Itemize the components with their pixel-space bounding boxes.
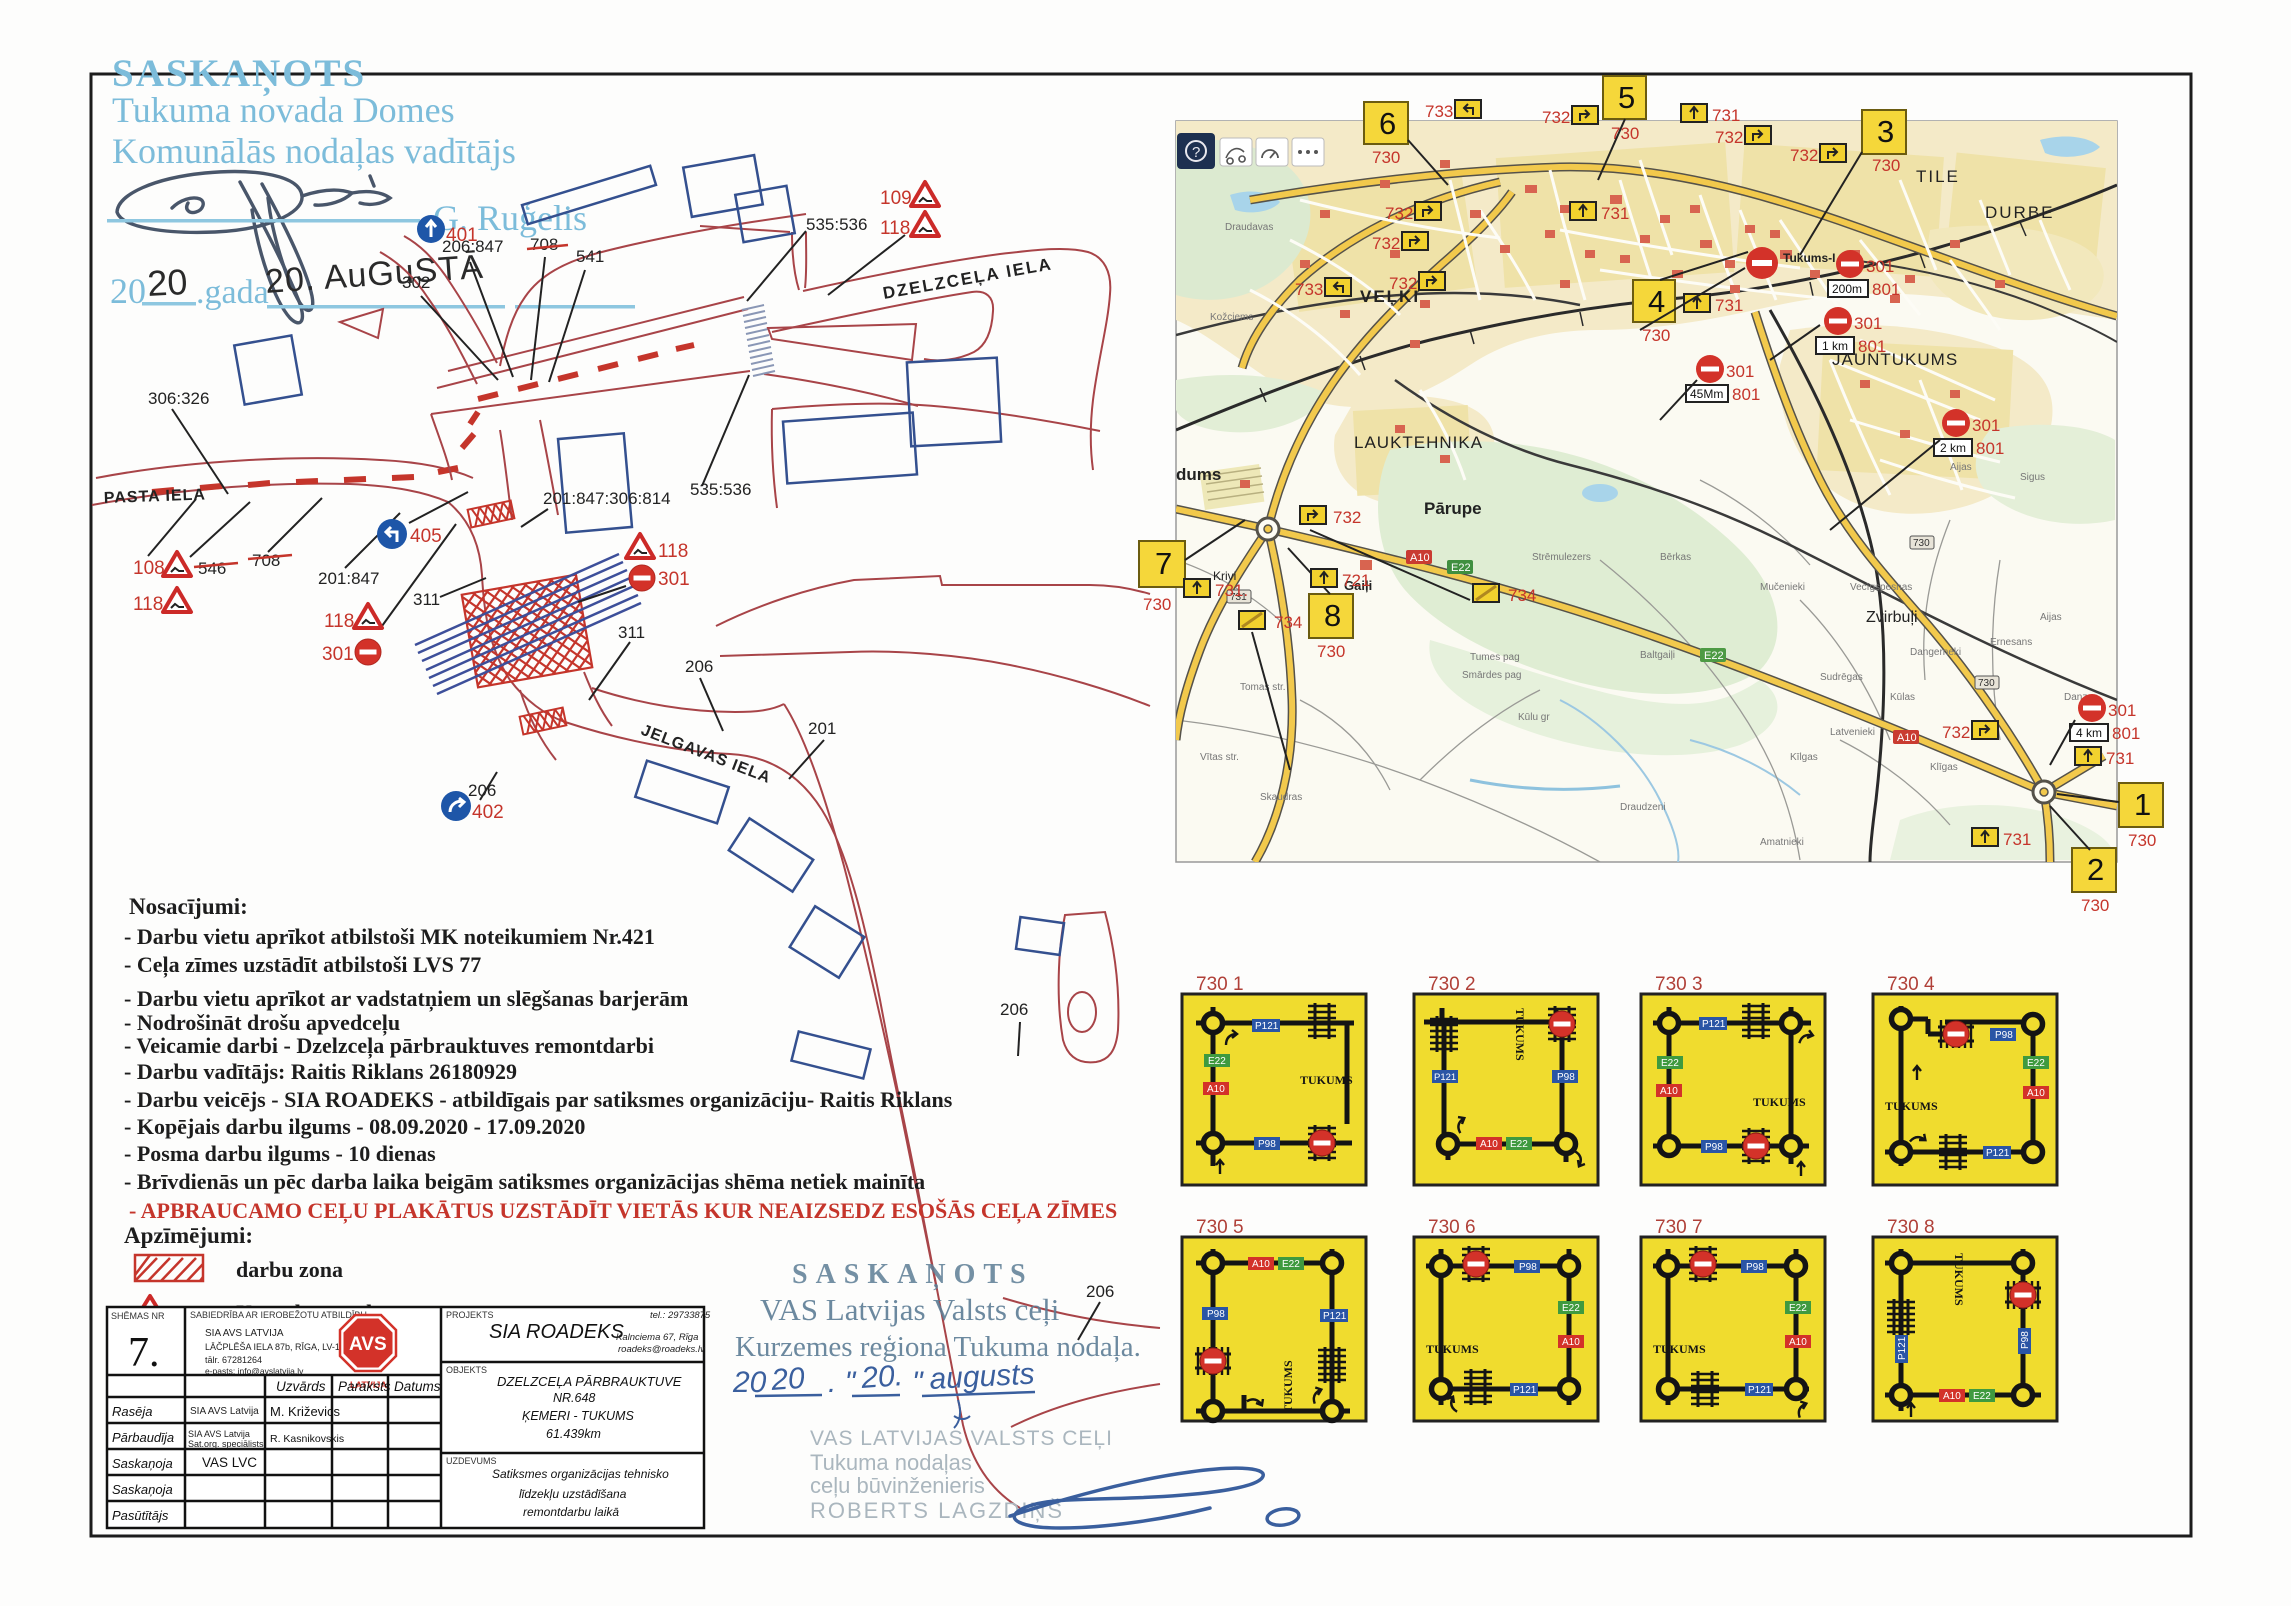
svg-text:Apzīmējumi:: Apzīmējumi: xyxy=(124,1223,253,1248)
svg-text:- Kopējais darbu ilgums - 08.0: - Kopējais darbu ilgums - 08.09.2020 - 1… xyxy=(124,1114,585,1139)
svg-text:TUKUMS: TUKUMS xyxy=(1653,1342,1706,1356)
svg-text:Kīlgas: Kīlgas xyxy=(1790,752,1818,763)
svg-text:Paraksts: Paraksts xyxy=(338,1379,391,1394)
svg-text:732: 732 xyxy=(1385,204,1413,223)
svg-text:TUKUMS: TUKUMS xyxy=(1281,1360,1295,1413)
svg-text:6: 6 xyxy=(1379,106,1396,141)
svg-text:augusts: augusts xyxy=(929,1358,1036,1396)
svg-text:E22: E22 xyxy=(1789,1303,1807,1314)
svg-text:301: 301 xyxy=(658,569,690,590)
svg-text:P98: P98 xyxy=(1557,1072,1575,1083)
svg-text:TUKUMS: TUKUMS xyxy=(1513,1008,1527,1061)
svg-text:P98: P98 xyxy=(2020,1331,2031,1349)
svg-text:E22: E22 xyxy=(1510,1139,1528,1150)
svg-text:Sudrēgas: Sudrēgas xyxy=(1820,672,1863,683)
svg-text:Kūlas: Kūlas xyxy=(1890,692,1915,703)
svg-text:VAS Latvijas Valsts ceļi: VAS Latvijas Valsts ceļi xyxy=(760,1292,1060,1327)
svg-text:UZDEVUMS: UZDEVUMS xyxy=(446,1456,497,1466)
svg-text:206:847: 206:847 xyxy=(442,237,503,256)
svg-text:61.439km: 61.439km xyxy=(546,1427,601,1441)
svg-text:Ernesans: Ernesans xyxy=(1990,637,2032,648)
svg-text:Tukums-I: Tukums-I xyxy=(1783,251,1835,265)
svg-text:732: 732 xyxy=(1790,146,1818,165)
svg-text:1: 1 xyxy=(2134,787,2151,822)
svg-text:dums: dums xyxy=(1176,465,1221,484)
svg-text:TUKUMS: TUKUMS xyxy=(1952,1253,1966,1306)
svg-text:206: 206 xyxy=(1086,1282,1114,1301)
svg-text:- APBRAUCAMO CEĻU PLAKĀTUS UZS: - APBRAUCAMO CEĻU PLAKĀTUS UZSTĀDĪT VIET… xyxy=(129,1198,1117,1224)
svg-text:. ": . " xyxy=(828,1366,857,1399)
svg-text:301: 301 xyxy=(1726,362,1754,381)
svg-text:734: 734 xyxy=(1274,613,1302,632)
svg-text:- Darbu vadītājs: Raitis Rikla: - Darbu vadītājs: Raitis Riklans 2618092… xyxy=(124,1059,517,1084)
svg-text:- Brīvdienās un pēc darba laik: - Brīvdienās un pēc darba laika beigām s… xyxy=(124,1169,925,1194)
svg-text:ĶEMERI - TUKUMS: ĶEMERI - TUKUMS xyxy=(522,1409,634,1423)
svg-text:730: 730 xyxy=(1978,678,1995,689)
svg-text:732: 732 xyxy=(1389,274,1417,293)
svg-text:E22: E22 xyxy=(1973,1391,1991,1402)
svg-text:E22: E22 xyxy=(1704,650,1724,662)
svg-text:730 5: 730 5 xyxy=(1196,1217,1244,1238)
svg-text:732: 732 xyxy=(1542,108,1570,127)
svg-text:731.: 731. xyxy=(1215,581,1248,600)
svg-text:Pārbaudīja: Pārbaudīja xyxy=(112,1430,174,1445)
svg-text:tel.: 29733875: tel.: 29733875 xyxy=(650,1310,711,1321)
svg-text:118: 118 xyxy=(880,218,910,239)
svg-text:201:847:306:814: 201:847:306:814 xyxy=(543,489,671,508)
svg-text:546: 546 xyxy=(198,559,226,578)
svg-text:A10: A10 xyxy=(1480,1139,1498,1150)
svg-text:P98: P98 xyxy=(1258,1139,1276,1150)
svg-text:NR.648: NR.648 xyxy=(553,1391,595,1405)
svg-text:VAS LVC: VAS LVC xyxy=(202,1455,257,1470)
svg-text:Aijas: Aijas xyxy=(2040,612,2062,623)
svg-text:306:326: 306:326 xyxy=(148,389,209,408)
svg-text:OBJEKTS: OBJEKTS xyxy=(446,1365,487,1375)
svg-text:?: ? xyxy=(1192,144,1200,161)
svg-text:Tumes pag: Tumes pag xyxy=(1470,652,1520,663)
svg-text:Klīgas: Klīgas xyxy=(1930,762,1958,773)
svg-text:P121: P121 xyxy=(1323,1311,1347,1322)
svg-text:E22: E22 xyxy=(1282,1259,1300,1270)
svg-text:PASTA IELA: PASTA IELA xyxy=(104,486,207,507)
svg-text:20: 20 xyxy=(110,271,146,311)
svg-text:302: 302 xyxy=(402,273,430,292)
svg-text:P121: P121 xyxy=(1434,1072,1456,1083)
svg-text:301: 301 xyxy=(322,644,354,665)
svg-text:2 km: 2 km xyxy=(1940,441,1966,455)
svg-text:Tukuma nodaļas: Tukuma nodaļas xyxy=(810,1450,972,1475)
svg-text:.gada: .gada xyxy=(196,274,269,311)
svg-text:730 7: 730 7 xyxy=(1655,1217,1703,1238)
svg-text:311: 311 xyxy=(413,590,440,609)
svg-text:311: 311 xyxy=(618,623,645,642)
svg-text:P121: P121 xyxy=(1702,1019,1726,1030)
svg-text:20: 20 xyxy=(732,1366,767,1399)
svg-text:R. Kasnikovskis: R. Kasnikovskis xyxy=(270,1433,344,1445)
svg-text:Uzvārds: Uzvārds xyxy=(276,1379,326,1394)
svg-text:201: 201 xyxy=(808,719,836,738)
svg-text:A10: A10 xyxy=(1562,1337,1580,1348)
svg-text:SIA ROADEKS: SIA ROADEKS xyxy=(489,1321,625,1343)
svg-text:Strēmulezers: Strēmulezers xyxy=(1532,552,1591,563)
svg-text:E22: E22 xyxy=(1562,1303,1580,1314)
svg-text:SHĒMAS NR: SHĒMAS NR xyxy=(111,1311,165,1321)
svg-text:Tukuma novada Domes: Tukuma novada Domes xyxy=(112,90,455,130)
svg-text:P121: P121 xyxy=(1513,1385,1537,1396)
svg-text:801: 801 xyxy=(1858,337,1886,356)
svg-text:Kalnciema 67, Rīga: Kalnciema 67, Rīga xyxy=(616,1332,698,1343)
svg-text:730 2: 730 2 xyxy=(1428,974,1476,995)
svg-text:Aijas: Aijas xyxy=(1950,462,1972,473)
svg-text:206: 206 xyxy=(468,781,496,800)
svg-text:TUKUMS: TUKUMS xyxy=(1426,1342,1479,1356)
svg-text:801: 801 xyxy=(1732,385,1760,404)
svg-text:118: 118 xyxy=(658,541,688,562)
svg-text:731: 731 xyxy=(1712,106,1740,125)
svg-text:734: 734 xyxy=(1508,586,1536,605)
svg-text:206: 206 xyxy=(685,657,713,676)
svg-text:732: 732 xyxy=(1333,508,1361,527)
svg-text:301: 301 xyxy=(1866,257,1894,276)
svg-text:A10: A10 xyxy=(1252,1259,1270,1270)
svg-text:3: 3 xyxy=(1877,114,1894,149)
svg-text:721: 721 xyxy=(1342,571,1370,590)
svg-text:SIA AVS Latvija: SIA AVS Latvija xyxy=(190,1406,259,1417)
svg-text:- Ceļa zīmes uzstādīt atbilsto: - Ceļa zīmes uzstādīt atbilstoši LVS 77 xyxy=(124,952,481,978)
svg-text:Draudzeni: Draudzeni xyxy=(1620,802,1666,813)
svg-text:730: 730 xyxy=(1913,538,1930,549)
svg-text:DZELZCEĻA PĀRBRAUKTUVE: DZELZCEĻA PĀRBRAUKTUVE xyxy=(497,1374,682,1389)
svg-text:730 3: 730 3 xyxy=(1655,974,1703,995)
svg-text:Kožciems: Kožciems xyxy=(1210,312,1253,323)
svg-text:730: 730 xyxy=(1642,326,1670,345)
svg-text:A10: A10 xyxy=(1789,1337,1807,1348)
svg-text:P98: P98 xyxy=(1995,1030,2013,1041)
svg-text:402: 402 xyxy=(472,802,504,823)
svg-text:801: 801 xyxy=(1872,280,1900,299)
svg-text:733: 733 xyxy=(1295,280,1323,299)
svg-text:8: 8 xyxy=(1324,598,1341,633)
svg-text:TUKUMS: TUKUMS xyxy=(1753,1095,1806,1109)
svg-text:E22: E22 xyxy=(2027,1058,2045,1069)
svg-text:PROJEKTS: PROJEKTS xyxy=(446,1310,494,1320)
svg-text:P121: P121 xyxy=(1897,1336,1908,1360)
svg-text:LĀČPLĒŠA IELA 87b, RĪGA, LV-10: LĀČPLĒŠA IELA 87b, RĪGA, LV-1011 xyxy=(205,1342,354,1352)
svg-text:731: 731 xyxy=(2106,749,2134,768)
svg-text:E22: E22 xyxy=(1451,562,1471,574)
svg-text:708: 708 xyxy=(252,551,280,570)
svg-text:20: 20 xyxy=(769,1362,806,1397)
svg-text:708: 708 xyxy=(530,235,558,254)
svg-text:5: 5 xyxy=(1618,80,1635,115)
svg-text:109: 109 xyxy=(880,188,912,209)
svg-text:Sat.org. speciālists: Sat.org. speciālists xyxy=(188,1439,264,1449)
svg-text:Saskaņoja: Saskaņoja xyxy=(112,1482,173,1497)
svg-text:TUKUMS: TUKUMS xyxy=(1300,1073,1353,1087)
svg-text:4 km: 4 km xyxy=(2076,726,2102,740)
svg-text:730 4: 730 4 xyxy=(1887,974,1935,995)
svg-text:Vecīgspesnas: Vecīgspesnas xyxy=(1850,582,1912,593)
svg-text:Draudavas: Draudavas xyxy=(1225,222,1273,233)
svg-text:A10: A10 xyxy=(2027,1088,2045,1099)
svg-text:SIA AVS LATVIJA: SIA AVS LATVIJA xyxy=(205,1328,284,1339)
svg-text:DURBE: DURBE xyxy=(1985,203,2055,222)
svg-text:731: 731 xyxy=(2003,830,2031,849)
svg-text:Smārdes pag: Smārdes pag xyxy=(1462,670,1521,681)
svg-text:108: 108 xyxy=(133,558,165,579)
svg-text:731: 731 xyxy=(1601,204,1629,223)
svg-text:A10: A10 xyxy=(1410,552,1430,564)
svg-text:Pārupe: Pārupe xyxy=(1424,499,1482,518)
svg-text:Skaudras: Skaudras xyxy=(1260,792,1302,803)
svg-text:301: 301 xyxy=(1972,416,2000,435)
svg-text:e-pasts: info@avslatvija.lv: e-pasts: info@avslatvija.lv xyxy=(205,1366,304,1376)
svg-text:Saskaņoja: Saskaņoja xyxy=(112,1456,173,1471)
svg-text:20: 20 xyxy=(146,261,188,304)
svg-text:731: 731 xyxy=(1715,296,1743,315)
svg-text:P98: P98 xyxy=(1705,1142,1723,1153)
svg-text:730: 730 xyxy=(1317,642,1345,661)
svg-text:- Darbu vietu aprīkot atbilsto: - Darbu vietu aprīkot atbilstoši MK note… xyxy=(124,924,655,949)
svg-text:TILE: TILE xyxy=(1916,167,1960,186)
svg-text:remontdarbu laikā: remontdarbu laikā xyxy=(523,1505,619,1519)
svg-text:118: 118 xyxy=(133,594,163,615)
svg-text:Satiksmes organizācijas tehnis: Satiksmes organizācijas tehnisko xyxy=(492,1467,669,1481)
svg-text:7.: 7. xyxy=(128,1330,160,1376)
svg-text:732: 732 xyxy=(1715,128,1743,147)
svg-text:801: 801 xyxy=(2112,724,2140,743)
svg-text:4: 4 xyxy=(1648,284,1665,319)
svg-text:7: 7 xyxy=(1155,546,1172,581)
svg-text:730: 730 xyxy=(1143,595,1171,614)
svg-text:732: 732 xyxy=(1942,723,1970,742)
svg-text:P98: P98 xyxy=(1207,1309,1225,1320)
svg-text:535:536: 535:536 xyxy=(806,215,867,234)
svg-text:Kūlu gr: Kūlu gr xyxy=(1518,712,1550,723)
svg-text:730 1: 730 1 xyxy=(1196,974,1244,995)
svg-text:Datums: Datums xyxy=(394,1379,441,1394)
svg-text:VAS LATVIJAS VALSTS CEĻI: VAS LATVIJAS VALSTS CEĻI xyxy=(810,1427,1113,1450)
svg-text:Vītas str.: Vītas str. xyxy=(1200,752,1239,763)
svg-text:SABIEDRĪBA AR IEROBEŽOTU ATBIL: SABIEDRĪBA AR IEROBEŽOTU ATBILDĪBU xyxy=(190,1310,367,1320)
svg-text:1 km: 1 km xyxy=(1822,339,1848,353)
svg-text:Kurzemes reģiona Tukuma nodaļa: Kurzemes reģiona Tukuma nodaļa. xyxy=(735,1331,1141,1363)
svg-text:Bērkas: Bērkas xyxy=(1660,552,1691,563)
svg-text:darbu zona: darbu zona xyxy=(236,1257,343,1282)
svg-text:Tomas str.: Tomas str. xyxy=(1240,682,1286,693)
svg-text:Pasūtītājs: Pasūtītājs xyxy=(112,1508,169,1523)
svg-text:": " xyxy=(912,1366,924,1399)
svg-text:Dangerneki: Dangerneki xyxy=(1910,647,1961,658)
svg-text:732: 732 xyxy=(1372,234,1400,253)
svg-text:Mučenieki: Mučenieki xyxy=(1760,582,1805,593)
svg-text:Latvenieki: Latvenieki xyxy=(1830,727,1875,738)
svg-text:801: 801 xyxy=(1976,439,2004,458)
svg-text:20.: 20. xyxy=(859,1359,904,1395)
svg-text:TUKUMS: TUKUMS xyxy=(1885,1099,1938,1113)
svg-text:Sigus: Sigus xyxy=(2020,472,2045,483)
svg-text:730: 730 xyxy=(1372,148,1400,167)
svg-text:E22: E22 xyxy=(1661,1058,1679,1069)
svg-text:Baltgaiļi: Baltgaiļi xyxy=(1640,650,1675,661)
svg-text:E22: E22 xyxy=(1208,1056,1226,1067)
svg-text:730: 730 xyxy=(2128,831,2156,850)
svg-text:līdzekļu uzstādīšana: līdzekļu uzstādīšana xyxy=(519,1487,627,1501)
svg-text:730 8: 730 8 xyxy=(1887,1217,1935,1238)
svg-text:201:847: 201:847 xyxy=(318,569,379,588)
svg-text:ceļu būvinženieris: ceļu būvinženieris xyxy=(810,1473,985,1498)
svg-text:tālr. 67281264: tālr. 67281264 xyxy=(205,1355,262,1365)
svg-text:Rasēja: Rasēja xyxy=(112,1404,152,1419)
svg-text:2: 2 xyxy=(2087,852,2104,887)
svg-text:Amatnieki: Amatnieki xyxy=(1760,837,1804,848)
svg-text:- Posma darbu ilgums - 10 dien: - Posma darbu ilgums - 10 dienas xyxy=(124,1141,436,1166)
svg-text:Komunālās nodaļas vadītājs: Komunālās nodaļas vadītājs xyxy=(112,131,516,171)
svg-text:P98: P98 xyxy=(1746,1262,1764,1273)
svg-text:SIA AVS Latvija: SIA AVS Latvija xyxy=(188,1429,250,1439)
svg-text:730: 730 xyxy=(2081,896,2109,915)
svg-text:200m: 200m xyxy=(1832,282,1862,296)
svg-text:535:536: 535:536 xyxy=(690,480,751,499)
svg-text:301: 301 xyxy=(2108,701,2136,720)
svg-text:A10: A10 xyxy=(1943,1391,1961,1402)
svg-text:- Veicamie darbi - Dzelzceļa p: - Veicamie darbi - Dzelzceļa pārbrauktuv… xyxy=(124,1033,654,1059)
svg-text:Nosacījumi:: Nosacījumi: xyxy=(129,894,248,919)
svg-text:- Darbu veicējs - SIA ROADEKS: - Darbu veicējs - SIA ROADEKS - atbildīg… xyxy=(124,1087,953,1112)
svg-text:730 6: 730 6 xyxy=(1428,1217,1476,1238)
svg-text:206: 206 xyxy=(1000,1000,1028,1019)
svg-text:Zvirbuļi: Zvirbuļi xyxy=(1866,609,1918,626)
svg-text:118: 118 xyxy=(324,611,354,632)
svg-text:AVS: AVS xyxy=(349,1334,387,1355)
svg-text:roadeks@roadeks.lv: roadeks@roadeks.lv xyxy=(618,1344,706,1355)
svg-text:45Mm: 45Mm xyxy=(1690,387,1723,401)
svg-text:SASKAŅOTS: SASKAŅOTS xyxy=(792,1259,1034,1291)
svg-text:301: 301 xyxy=(1854,314,1882,333)
svg-text:M. Križevics: M. Križevics xyxy=(270,1404,341,1419)
svg-text:P121: P121 xyxy=(1986,1148,2010,1159)
svg-text:P121: P121 xyxy=(1748,1385,1772,1396)
svg-text:A10: A10 xyxy=(1207,1084,1225,1095)
svg-text:A10: A10 xyxy=(1897,732,1917,744)
svg-text:P98: P98 xyxy=(1519,1262,1537,1273)
svg-text:405: 405 xyxy=(410,526,442,547)
svg-text:730: 730 xyxy=(1872,156,1900,175)
svg-text:P121: P121 xyxy=(1255,1021,1279,1032)
svg-text:A10: A10 xyxy=(1660,1086,1678,1097)
svg-text:LAUKTEHNIKA: LAUKTEHNIKA xyxy=(1354,433,1483,452)
svg-text:- Darbu vietu aprīkot ar vadst: - Darbu vietu aprīkot ar vadstatņiem un … xyxy=(124,986,688,1012)
svg-text:733: 733 xyxy=(1425,102,1453,121)
svg-text:541: 541 xyxy=(576,247,604,266)
